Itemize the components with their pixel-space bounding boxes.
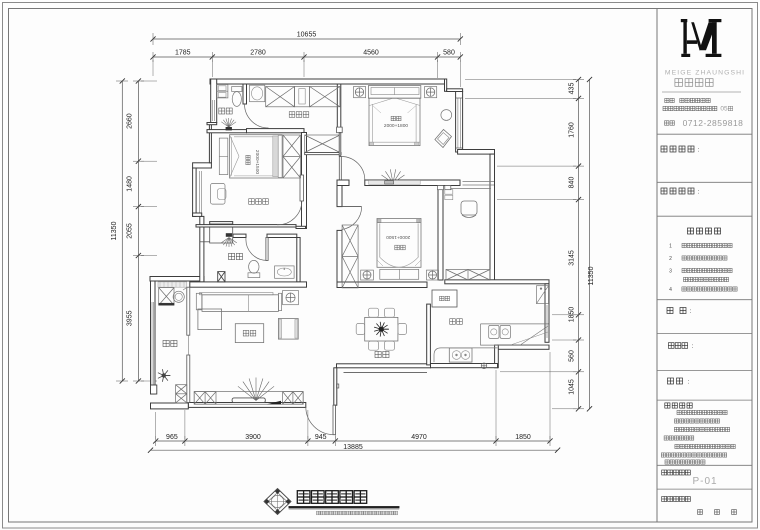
svg-text:4970: 4970 (411, 434, 427, 441)
svg-text:1785: 1785 (175, 50, 191, 57)
svg-text:840: 840 (569, 177, 576, 189)
svg-text:4: 4 (669, 287, 672, 293)
svg-text:2000+1800: 2000+1800 (384, 123, 408, 129)
svg-text:2660: 2660 (127, 113, 134, 129)
svg-text:3900: 3900 (245, 434, 261, 441)
svg-text:MEIGE ZHAUNGSHI: MEIGE ZHAUNGSHI (665, 70, 745, 77)
svg-text:0712-2859818: 0712-2859818 (683, 118, 744, 128)
svg-text:2780: 2780 (250, 50, 266, 57)
svg-text:11350: 11350 (588, 266, 595, 285)
svg-text:2000+1500: 2000+1500 (386, 234, 410, 240)
svg-text:1480: 1480 (127, 176, 134, 192)
svg-text:580: 580 (443, 50, 455, 57)
svg-text:11350: 11350 (111, 221, 118, 240)
svg-text:1: 1 (669, 243, 672, 249)
svg-text:1760: 1760 (569, 122, 576, 138)
svg-text:2: 2 (669, 256, 672, 262)
svg-text:3955: 3955 (127, 310, 134, 326)
svg-text:2055: 2055 (127, 223, 134, 239)
svg-text:P-01: P-01 (692, 476, 717, 487)
svg-text:945: 945 (315, 434, 327, 441)
svg-text:965: 965 (166, 434, 178, 441)
svg-text:1850: 1850 (569, 307, 576, 323)
svg-text:435: 435 (569, 83, 576, 95)
svg-text:560: 560 (569, 350, 576, 362)
svg-text:13885: 13885 (343, 444, 363, 451)
svg-text:3: 3 (669, 268, 672, 274)
svg-text:10655: 10655 (297, 32, 317, 39)
svg-text:2000+1500: 2000+1500 (254, 150, 260, 174)
svg-text:1850: 1850 (515, 434, 531, 441)
svg-text:3145: 3145 (569, 250, 576, 266)
svg-text:05: 05 (720, 106, 728, 113)
svg-text:1045: 1045 (569, 379, 576, 395)
svg-text:4560: 4560 (363, 50, 379, 57)
